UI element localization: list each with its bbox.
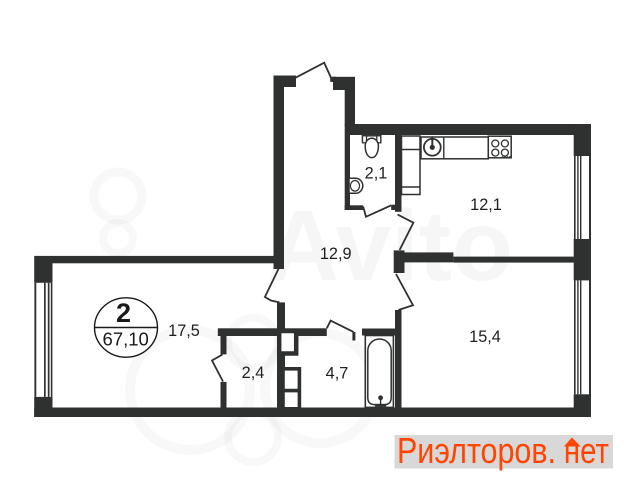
svg-text:2,4: 2,4	[242, 364, 265, 382]
svg-text:12,9: 12,9	[320, 245, 352, 263]
svg-text:4,7: 4,7	[326, 365, 349, 383]
svg-text:67,10: 67,10	[103, 329, 149, 350]
svg-text:Риэлторов.нет: Риэлторов.нет	[397, 430, 609, 471]
svg-text:2: 2	[116, 298, 131, 328]
svg-text:15,4: 15,4	[469, 328, 501, 346]
svg-text:2,1: 2,1	[365, 165, 388, 183]
svg-text:17,5: 17,5	[168, 322, 200, 340]
svg-text:12,1: 12,1	[470, 196, 502, 214]
